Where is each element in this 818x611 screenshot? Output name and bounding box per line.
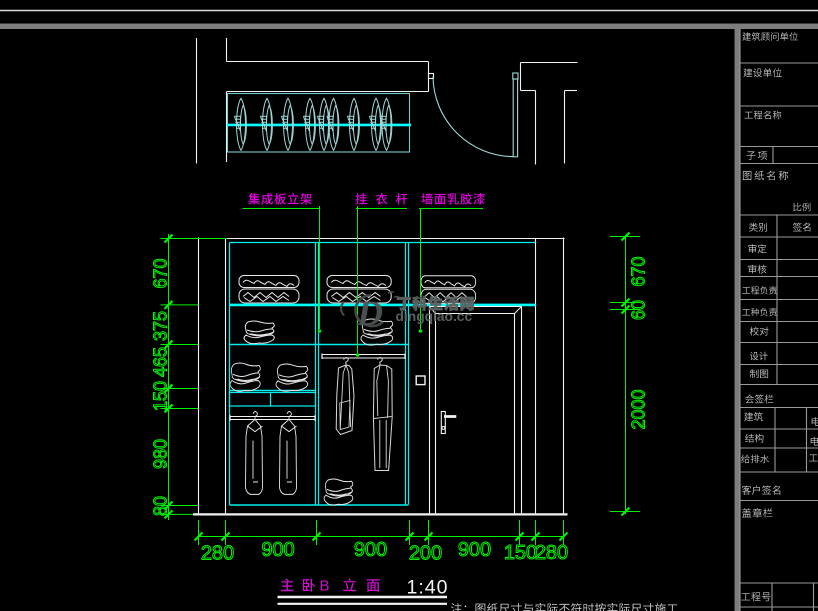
svg-text:2000: 2000 [629,389,649,429]
svg-text:900: 900 [354,539,387,561]
svg-text:980: 980 [151,439,171,469]
svg-text:280: 280 [535,542,568,564]
svg-text:B: B [320,578,330,595]
svg-text:1:40: 1:40 [407,577,449,599]
svg-text:670: 670 [629,256,649,286]
svg-text:375: 375 [151,311,171,341]
svg-text:670: 670 [151,258,171,288]
svg-text:465: 465 [151,347,171,377]
svg-text:dingqiao.cc: dingqiao.cc [396,309,473,324]
svg-text:900: 900 [261,539,294,561]
svg-text:280: 280 [201,543,234,565]
svg-text:60: 60 [629,300,649,320]
svg-text:200: 200 [409,543,442,565]
svg-text:80: 80 [151,496,171,516]
svg-text:D: D [356,293,383,333]
svg-text:900: 900 [458,539,491,561]
svg-text:150: 150 [504,542,537,564]
svg-text:150: 150 [151,381,171,411]
